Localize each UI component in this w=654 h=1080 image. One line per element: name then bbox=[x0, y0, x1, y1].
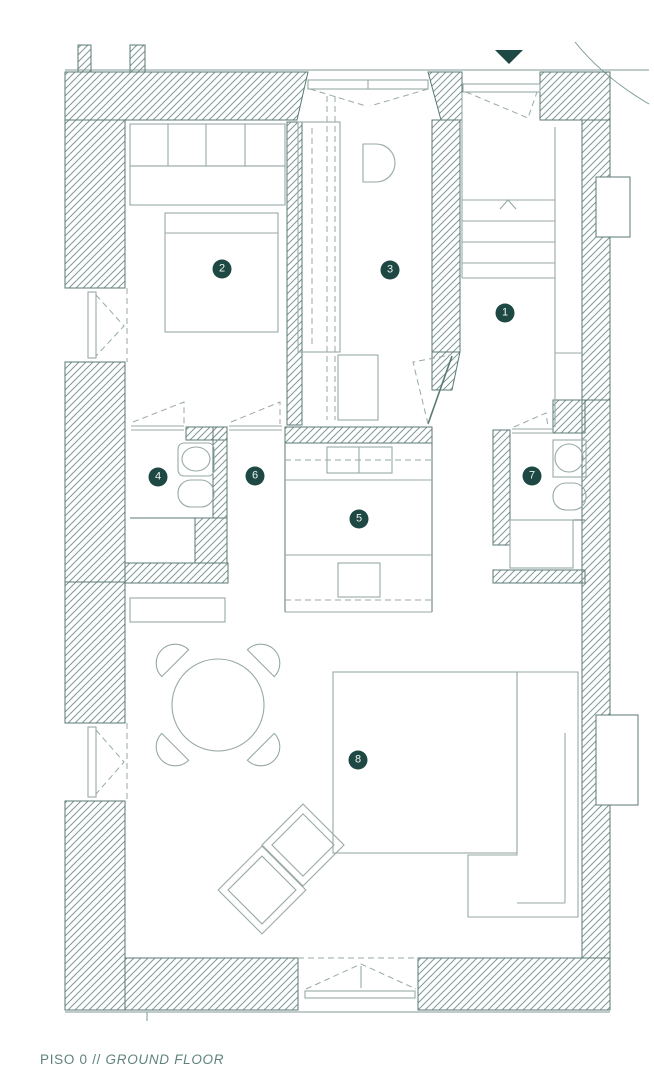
floor-plan-page: 12345678 PISO 0 // GROUND FLOOR bbox=[0, 0, 654, 1080]
dining-chair bbox=[247, 733, 287, 773]
bathroom4-fixtures bbox=[130, 443, 214, 518]
toilet bbox=[553, 483, 586, 510]
door-swing-bath7 bbox=[514, 413, 548, 427]
dining-chair bbox=[148, 636, 188, 676]
room-marker-3: 3 bbox=[381, 261, 400, 280]
room-marker-6: 6 bbox=[246, 467, 265, 486]
room-marker-2: 2 bbox=[213, 260, 232, 279]
cabinet bbox=[338, 355, 378, 420]
dining-chair bbox=[148, 733, 188, 773]
wall-bath4-right bbox=[213, 427, 227, 518]
window-left-upper bbox=[88, 288, 127, 362]
room3-furniture bbox=[298, 96, 452, 424]
stove bbox=[338, 563, 380, 597]
washbasin bbox=[363, 144, 395, 182]
bottom-wall-right bbox=[418, 958, 610, 1010]
caption: PISO 0 // GROUND FLOOR bbox=[40, 1052, 224, 1067]
caption-separator: // bbox=[92, 1052, 101, 1067]
door-swing-corridor bbox=[231, 402, 280, 424]
room-marker-7: 7 bbox=[523, 467, 542, 486]
wardrobe-shelf bbox=[130, 166, 285, 205]
wall-bath7-left bbox=[493, 430, 510, 545]
wardrobe bbox=[130, 124, 285, 166]
floor-plan-drawing bbox=[0, 0, 654, 1080]
bathroom7-fixtures bbox=[510, 440, 586, 568]
window-left-lower bbox=[88, 723, 127, 801]
wall-below-bath4 bbox=[125, 563, 228, 583]
room-marker-8: 8 bbox=[349, 751, 368, 770]
armchair bbox=[262, 804, 344, 886]
caption-floor-label-en: GROUND FLOOR bbox=[106, 1052, 225, 1067]
wall-room2-room3 bbox=[287, 122, 302, 425]
top-wall-left bbox=[65, 72, 308, 120]
left-wall-1 bbox=[65, 120, 125, 288]
stairs-up-arrow-icon bbox=[500, 200, 516, 209]
kitchen-top-wall bbox=[285, 427, 432, 443]
armchair bbox=[218, 846, 306, 934]
entrance-door-leaf bbox=[463, 84, 540, 92]
entrance-arrow-icon bbox=[495, 50, 523, 64]
right-wall-lower bbox=[582, 400, 610, 958]
sofa bbox=[468, 672, 578, 917]
entrance bbox=[463, 50, 540, 118]
right-wall-upper bbox=[582, 120, 610, 400]
wall-stub-left bbox=[78, 45, 91, 72]
right-wall-notch bbox=[596, 177, 630, 237]
staircase bbox=[462, 92, 582, 427]
toilet bbox=[178, 480, 214, 507]
left-wall-4 bbox=[65, 801, 125, 1010]
left-wall-2 bbox=[65, 362, 125, 582]
room-marker-5: 5 bbox=[350, 510, 369, 529]
entrance-door-swing bbox=[466, 92, 537, 118]
room-marker-1: 1 bbox=[496, 304, 515, 323]
bottom-wall-left bbox=[125, 958, 298, 1010]
wall-bath7-top bbox=[553, 400, 585, 433]
dining-table bbox=[172, 659, 264, 751]
wall-room3-hall bbox=[432, 120, 460, 352]
counter bbox=[298, 122, 340, 352]
top-wall-right bbox=[540, 72, 610, 120]
closet bbox=[510, 520, 573, 568]
window-top bbox=[308, 80, 428, 106]
left-wall-3 bbox=[65, 582, 125, 723]
wall-stub-left-2 bbox=[130, 45, 145, 72]
wall-below-bath7 bbox=[493, 570, 585, 583]
room-marker-4: 4 bbox=[149, 468, 168, 487]
walls-layer bbox=[65, 45, 638, 1010]
top-wall-mid bbox=[428, 72, 462, 120]
site-boundary-lines bbox=[65, 42, 649, 1021]
right-wall-niche bbox=[596, 715, 638, 805]
room2-furniture bbox=[130, 124, 285, 332]
window-bottom bbox=[298, 958, 418, 998]
door-swing-bath4 bbox=[133, 402, 184, 424]
wall-bath4-corner bbox=[195, 518, 227, 563]
sideboard bbox=[130, 598, 225, 622]
caption-floor-label: PISO 0 bbox=[40, 1052, 88, 1067]
dining-chair bbox=[247, 636, 287, 676]
